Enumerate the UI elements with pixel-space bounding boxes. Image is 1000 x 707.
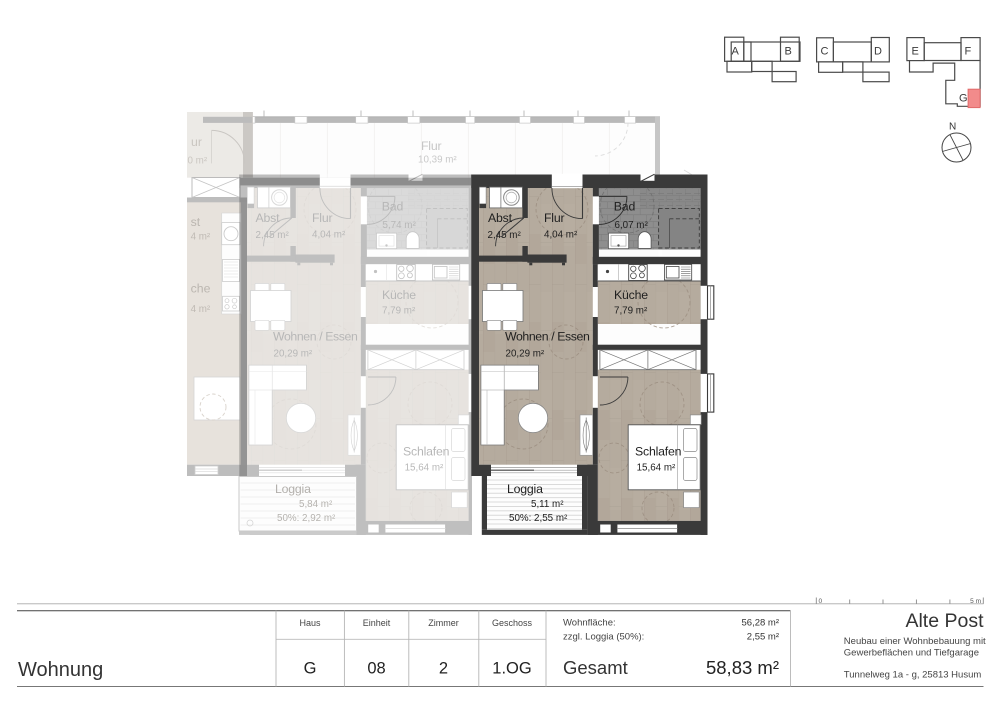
- svg-text:Wohnfläche:: Wohnfläche:: [563, 618, 616, 629]
- svg-text:1.OG: 1.OG: [492, 660, 531, 678]
- svg-text:Alte Post: Alte Post: [905, 610, 984, 632]
- svg-text:Küche: Küche: [614, 288, 648, 302]
- svg-text:Schlafen: Schlafen: [403, 445, 450, 459]
- svg-text:15,64 m²: 15,64 m²: [637, 463, 676, 474]
- svg-text:Wohnen / Essen: Wohnen / Essen: [505, 330, 590, 344]
- svg-text:4 m²: 4 m²: [191, 304, 211, 315]
- svg-text:0: 0: [819, 598, 823, 605]
- svg-text:che: che: [191, 282, 211, 296]
- svg-text:4 m²: 4 m²: [191, 232, 211, 243]
- svg-text:Tunnelweg 1a - g, 25813 Husum: Tunnelweg 1a - g, 25813 Husum: [844, 670, 982, 681]
- svg-text:7,79 m²: 7,79 m²: [614, 306, 648, 317]
- svg-text:Wohnen / Essen: Wohnen / Essen: [273, 330, 358, 344]
- svg-text:st: st: [191, 215, 201, 229]
- svg-text:Gewerbeflächen und Tiefgarage: Gewerbeflächen und Tiefgarage: [844, 648, 979, 659]
- svg-text:56,28 m²: 56,28 m²: [742, 618, 780, 629]
- svg-text:Loggia: Loggia: [275, 482, 311, 496]
- svg-text:Abst: Abst: [488, 211, 513, 225]
- svg-text:20,29 m²: 20,29 m²: [274, 349, 313, 360]
- svg-text:G: G: [304, 660, 317, 678]
- svg-text:6,07 m²: 6,07 m²: [615, 220, 649, 231]
- svg-text:2: 2: [439, 660, 448, 678]
- svg-text:5,11 m²: 5,11 m²: [531, 499, 564, 510]
- svg-text:Flur: Flur: [421, 139, 441, 153]
- svg-text:15,64 m²: 15,64 m²: [405, 463, 444, 474]
- svg-text:N: N: [949, 122, 956, 133]
- svg-text:Einheit: Einheit: [363, 618, 391, 628]
- svg-text:G: G: [959, 93, 968, 105]
- svg-text:5,74 m²: 5,74 m²: [383, 220, 417, 231]
- svg-text:Küche: Küche: [382, 288, 416, 302]
- svg-text:Geschoss: Geschoss: [492, 618, 533, 628]
- svg-text:Haus: Haus: [299, 618, 321, 628]
- svg-text:2,45 m²: 2,45 m²: [256, 230, 290, 241]
- svg-text:F: F: [965, 46, 972, 58]
- svg-text:Abst: Abst: [256, 211, 281, 225]
- svg-text:Neubau einer Wohnbebauung mit: Neubau einer Wohnbebauung mit: [844, 636, 986, 647]
- svg-text:Bad: Bad: [614, 200, 636, 214]
- svg-text:Gesamt: Gesamt: [563, 657, 628, 678]
- svg-text:Flur: Flur: [312, 211, 332, 225]
- svg-text:5,84 m²: 5,84 m²: [299, 499, 333, 510]
- svg-text:B: B: [785, 46, 792, 58]
- svg-text:5 m: 5 m: [970, 598, 981, 605]
- svg-text:2,55 m²: 2,55 m²: [747, 632, 779, 643]
- svg-text:zzgl. Loggia (50%):: zzgl. Loggia (50%):: [563, 632, 644, 643]
- svg-text:Flur: Flur: [544, 211, 564, 225]
- svg-text:Wohnung: Wohnung: [18, 659, 103, 681]
- svg-text:08: 08: [367, 660, 385, 678]
- svg-text:C: C: [821, 46, 829, 58]
- svg-text:4,04 m²: 4,04 m²: [544, 230, 578, 241]
- svg-text:20,29 m²: 20,29 m²: [506, 349, 545, 360]
- svg-text:ur: ur: [191, 135, 202, 149]
- svg-text:A: A: [732, 46, 740, 58]
- svg-text:0 m²: 0 m²: [188, 156, 208, 167]
- svg-text:Schlafen: Schlafen: [635, 445, 682, 459]
- svg-text:2,45 m²: 2,45 m²: [488, 230, 522, 241]
- svg-text:Bad: Bad: [382, 200, 404, 214]
- svg-text:Zimmer: Zimmer: [428, 618, 459, 628]
- svg-text:7,79 m²: 7,79 m²: [382, 306, 416, 317]
- svg-text:Loggia: Loggia: [507, 482, 543, 496]
- svg-text:50%: 2,92 m²: 50%: 2,92 m²: [277, 513, 336, 524]
- svg-text:50%: 2,55 m²: 50%: 2,55 m²: [509, 513, 568, 524]
- svg-text:10,39 m²: 10,39 m²: [418, 155, 457, 166]
- svg-text:4,04 m²: 4,04 m²: [312, 230, 346, 241]
- svg-text:E: E: [912, 46, 919, 58]
- svg-text:D: D: [874, 46, 882, 58]
- svg-text:58,83 m²: 58,83 m²: [706, 657, 779, 678]
